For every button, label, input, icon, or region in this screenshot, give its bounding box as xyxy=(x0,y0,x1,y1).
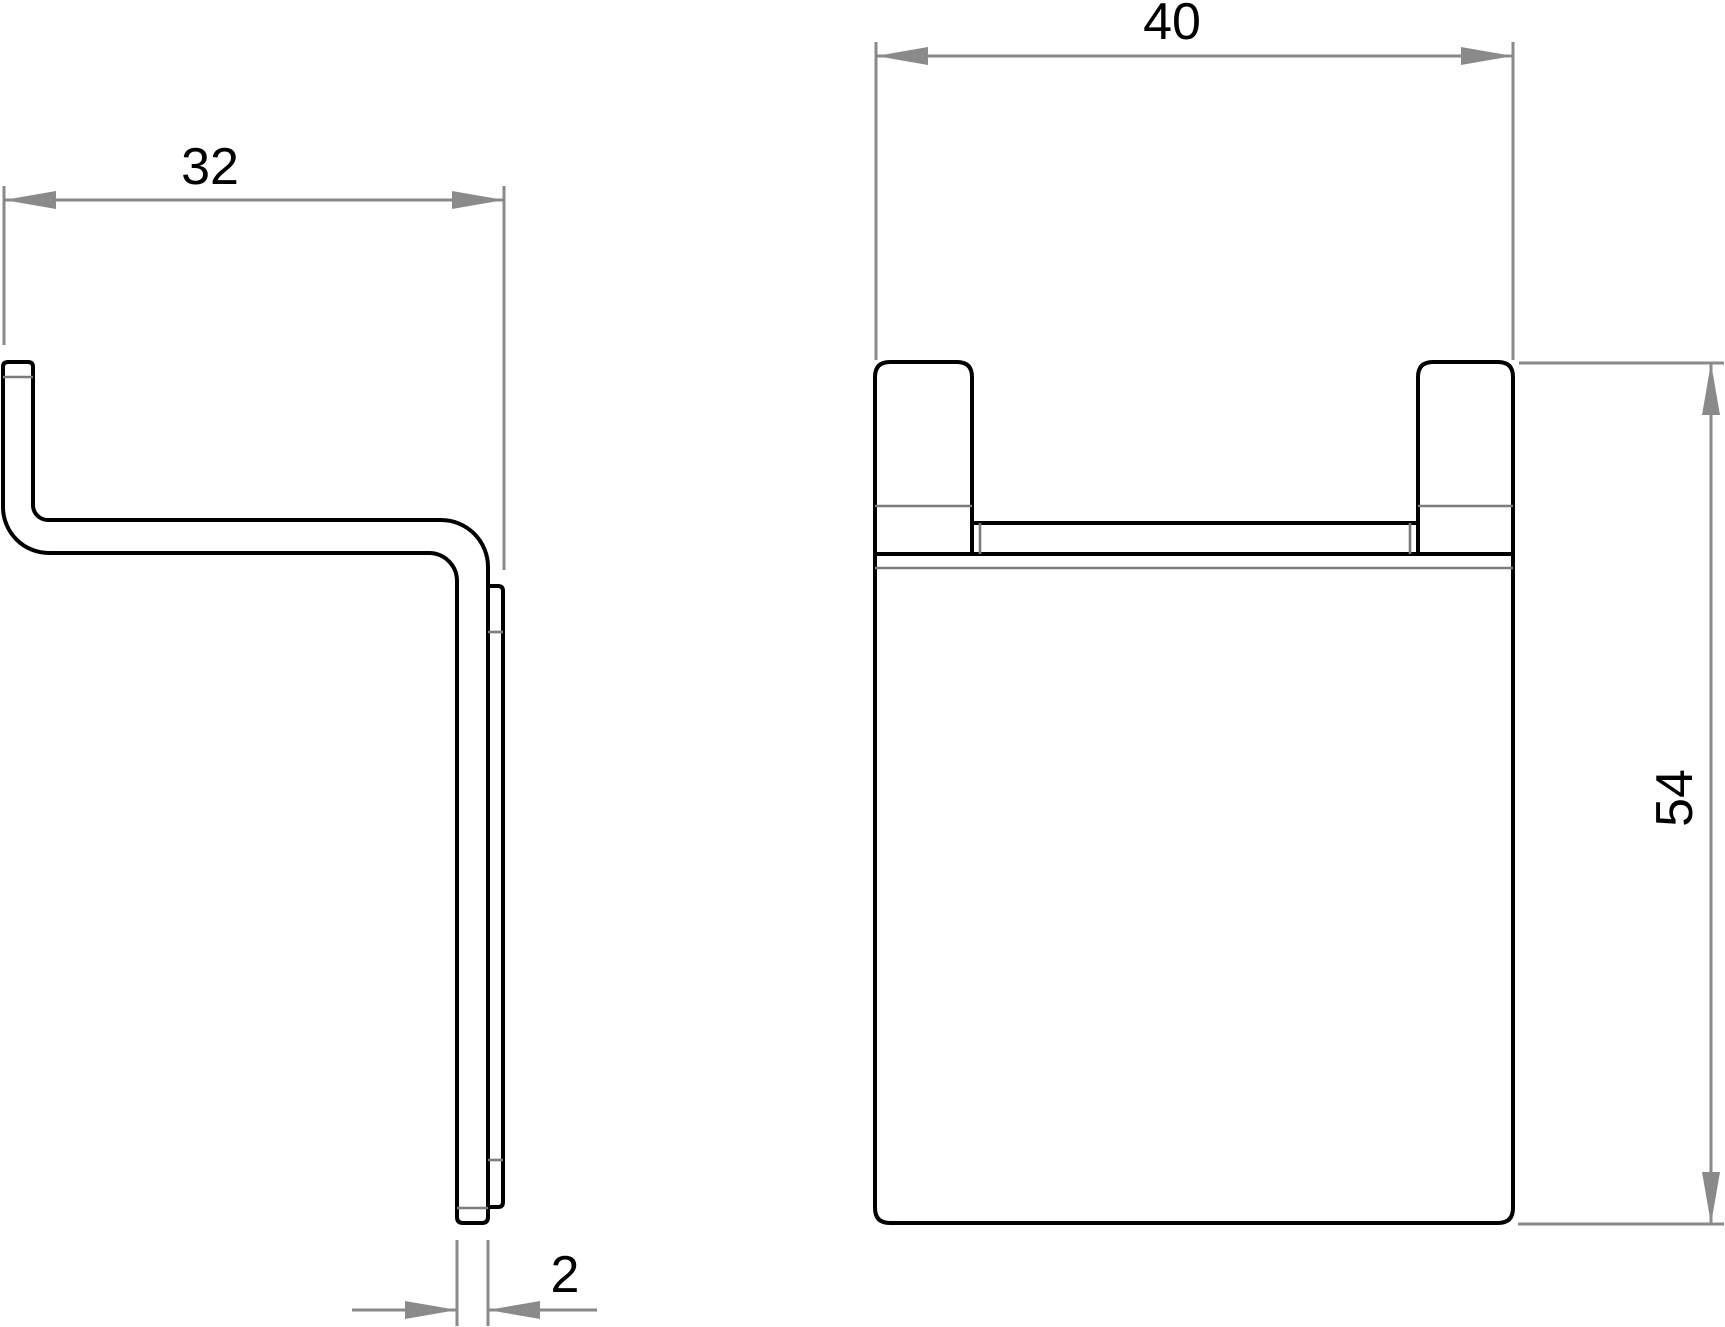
dim-32-arrowhead-left xyxy=(4,191,56,209)
dim-54-arrowhead-top xyxy=(1702,363,1720,415)
side-profile-outline xyxy=(3,362,488,1223)
dim-2-arrowhead-right xyxy=(488,1301,540,1319)
side-back-strip-outline xyxy=(488,586,503,1207)
dim-54-label: 54 xyxy=(1646,769,1704,827)
drawing-canvas: 32 40 54 2 xyxy=(0,0,1725,1327)
dimension-thickness-2: 2 xyxy=(352,1240,597,1326)
dim-2-arrowhead-left xyxy=(405,1301,457,1319)
technical-drawing-page: 32 40 54 2 xyxy=(0,0,1725,1327)
front-view xyxy=(875,362,1513,1223)
dim-54-arrowhead-bottom xyxy=(1702,1172,1720,1224)
front-right-tab-outline xyxy=(1418,362,1513,554)
dim-40-arrowhead-left xyxy=(876,47,928,65)
dimension-depth-32: 32 xyxy=(4,138,504,570)
side-view xyxy=(3,362,503,1223)
dim-32-label: 32 xyxy=(181,138,239,196)
dimension-width-40: 40 xyxy=(876,0,1513,360)
dimension-height-54: 54 xyxy=(1518,363,1724,1224)
dim-40-label: 40 xyxy=(1143,0,1201,51)
dim-32-arrowhead-right xyxy=(452,191,504,209)
front-left-tab-outline xyxy=(875,362,972,554)
dim-40-arrowhead-right xyxy=(1461,47,1513,65)
dim-2-label: 2 xyxy=(551,1246,580,1304)
